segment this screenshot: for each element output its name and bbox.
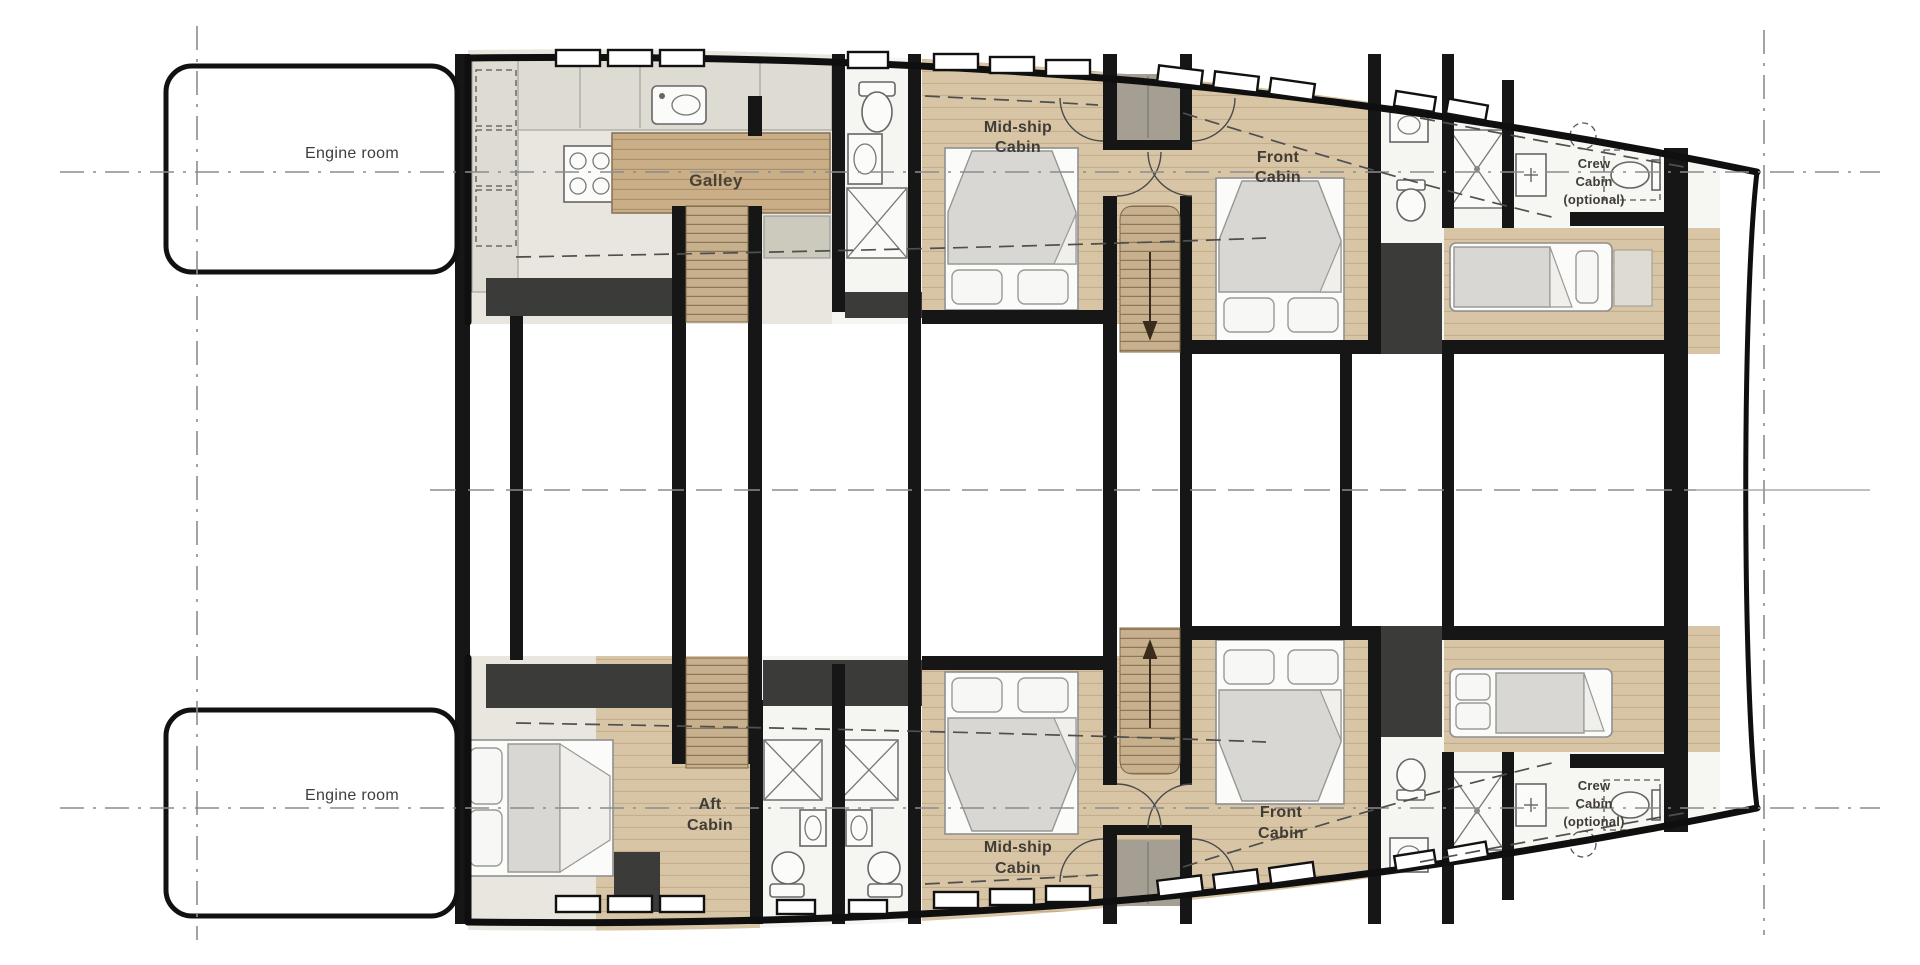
aft-cabin-label-2: Cabin	[687, 817, 733, 834]
window	[1046, 886, 1090, 902]
port-midship-label-2: Cabin	[995, 139, 1041, 156]
pillow	[1224, 298, 1274, 332]
stbd-crew-label-2: Cabin	[1575, 796, 1612, 811]
catamaran-deck-plan: Engine room Engine room Galley Mid-ship …	[0, 0, 1920, 965]
front-bath-wall	[1368, 626, 1381, 924]
drain-icon	[1474, 166, 1480, 172]
stbd-front-label-2: Cabin	[1258, 825, 1304, 842]
port-crew-label-1: Crew	[1578, 156, 1611, 171]
window	[660, 896, 704, 912]
front-bath-wall	[1368, 54, 1381, 354]
window	[990, 57, 1034, 73]
window	[608, 50, 652, 66]
toilet-icon	[868, 852, 900, 884]
port-front-bed	[1216, 178, 1344, 342]
galley-label: Galley	[689, 171, 743, 190]
fwd-locker	[1381, 243, 1442, 354]
window	[608, 896, 652, 912]
pillow	[470, 810, 502, 866]
galley-bath-wall	[832, 54, 845, 312]
bed-duvet	[1219, 181, 1341, 292]
port-crew-label-2: Cabin	[1575, 174, 1612, 189]
toilet-icon	[1397, 759, 1425, 791]
aft-cabin-label-1: Aft	[698, 796, 721, 813]
pillow	[1018, 678, 1068, 712]
faucet-icon	[659, 93, 665, 99]
toilet-icon	[1397, 189, 1425, 221]
window	[777, 900, 815, 914]
engine-room-starboard-label: Engine room	[305, 787, 399, 804]
stair-cell-wall	[748, 206, 762, 764]
stbd-midship-label-2: Cabin	[995, 860, 1041, 877]
engine-room-port-label: Engine room	[305, 145, 399, 162]
window	[934, 892, 978, 908]
engine-room-box	[166, 710, 457, 916]
aft-cabin-wall	[750, 700, 763, 924]
engine-room-starboard: Engine room	[166, 710, 457, 916]
stbd-front-bed	[1216, 640, 1344, 804]
port-front-label-2: Cabin	[1255, 169, 1301, 186]
berth-bridge-wall	[1442, 354, 1454, 630]
pillow	[1456, 674, 1490, 700]
pillow	[470, 748, 502, 804]
stbd-inner-wall	[922, 656, 1103, 670]
port-crew-berth	[1450, 243, 1652, 311]
toilet-icon	[772, 852, 804, 884]
window	[660, 50, 704, 66]
toilet-icon	[862, 92, 892, 132]
galley-wall-stub	[748, 96, 762, 136]
pillow	[1288, 298, 1338, 332]
window	[848, 52, 888, 68]
berth-side-table	[1614, 250, 1652, 306]
engine-room-box	[166, 66, 457, 272]
port-midship-label-1: Mid-ship	[984, 119, 1052, 136]
bath-shower-wall	[1442, 752, 1454, 924]
vanity	[848, 134, 882, 184]
galley-stove	[564, 146, 616, 202]
window	[934, 54, 978, 70]
galley-stairs	[686, 206, 748, 322]
toilet-tank	[868, 884, 902, 897]
stbd-inner-slab	[486, 664, 674, 708]
berth-duvet	[1496, 673, 1584, 733]
aft-cabin-stairs	[686, 658, 748, 768]
pillow	[952, 270, 1002, 304]
port-inner-wall	[922, 310, 1103, 324]
stair-cell-wall	[672, 206, 686, 764]
window	[849, 900, 887, 914]
toilet-tank	[1652, 160, 1660, 190]
galley-sink	[652, 86, 706, 124]
stbd-midship-label-1: Mid-ship	[984, 839, 1052, 856]
pillow	[1456, 703, 1490, 729]
window	[556, 50, 600, 66]
toilet-icon	[1611, 162, 1649, 188]
fwd-locker	[1381, 626, 1442, 737]
stbd-crew-berth	[1450, 669, 1612, 737]
toilet-tank	[1652, 790, 1660, 820]
toilet-tank	[770, 884, 804, 897]
pillow	[1288, 650, 1338, 684]
bath-shower-wall	[1442, 54, 1454, 228]
bridge-wall	[510, 316, 523, 660]
bath-midship-wall	[908, 54, 921, 924]
corridor-wall	[1103, 832, 1117, 924]
stbd-bath-divider	[832, 664, 845, 924]
corridor-header-wall	[1103, 140, 1192, 150]
stbd-front-label-1: Front	[1260, 804, 1303, 821]
drain-icon	[1474, 808, 1480, 814]
pillow	[1224, 650, 1274, 684]
berth-duvet	[1454, 247, 1550, 307]
engine-room-port: Engine room	[166, 66, 457, 272]
pillow	[952, 678, 1002, 712]
pillow	[1018, 270, 1068, 304]
bed-duvet	[1219, 690, 1341, 801]
window	[1046, 60, 1090, 76]
port-front-label-1: Front	[1257, 149, 1300, 166]
stbd-crew-label-1: Crew	[1578, 778, 1611, 793]
port-inner-slab	[486, 278, 674, 316]
galley-left-counter	[472, 60, 518, 292]
floor-plan-drawing: Engine room Engine room Galley Mid-ship …	[0, 0, 1920, 965]
corridor-wall	[1103, 54, 1117, 150]
pillow	[1576, 251, 1598, 303]
port-crew-label-3: (optional)	[1563, 192, 1624, 207]
stbd-midship-bed	[945, 672, 1078, 834]
window	[556, 896, 600, 912]
bridge-wall-fwd	[1340, 354, 1352, 630]
window	[990, 889, 1034, 905]
stbd-crew-label-3: (optional)	[1563, 814, 1624, 829]
